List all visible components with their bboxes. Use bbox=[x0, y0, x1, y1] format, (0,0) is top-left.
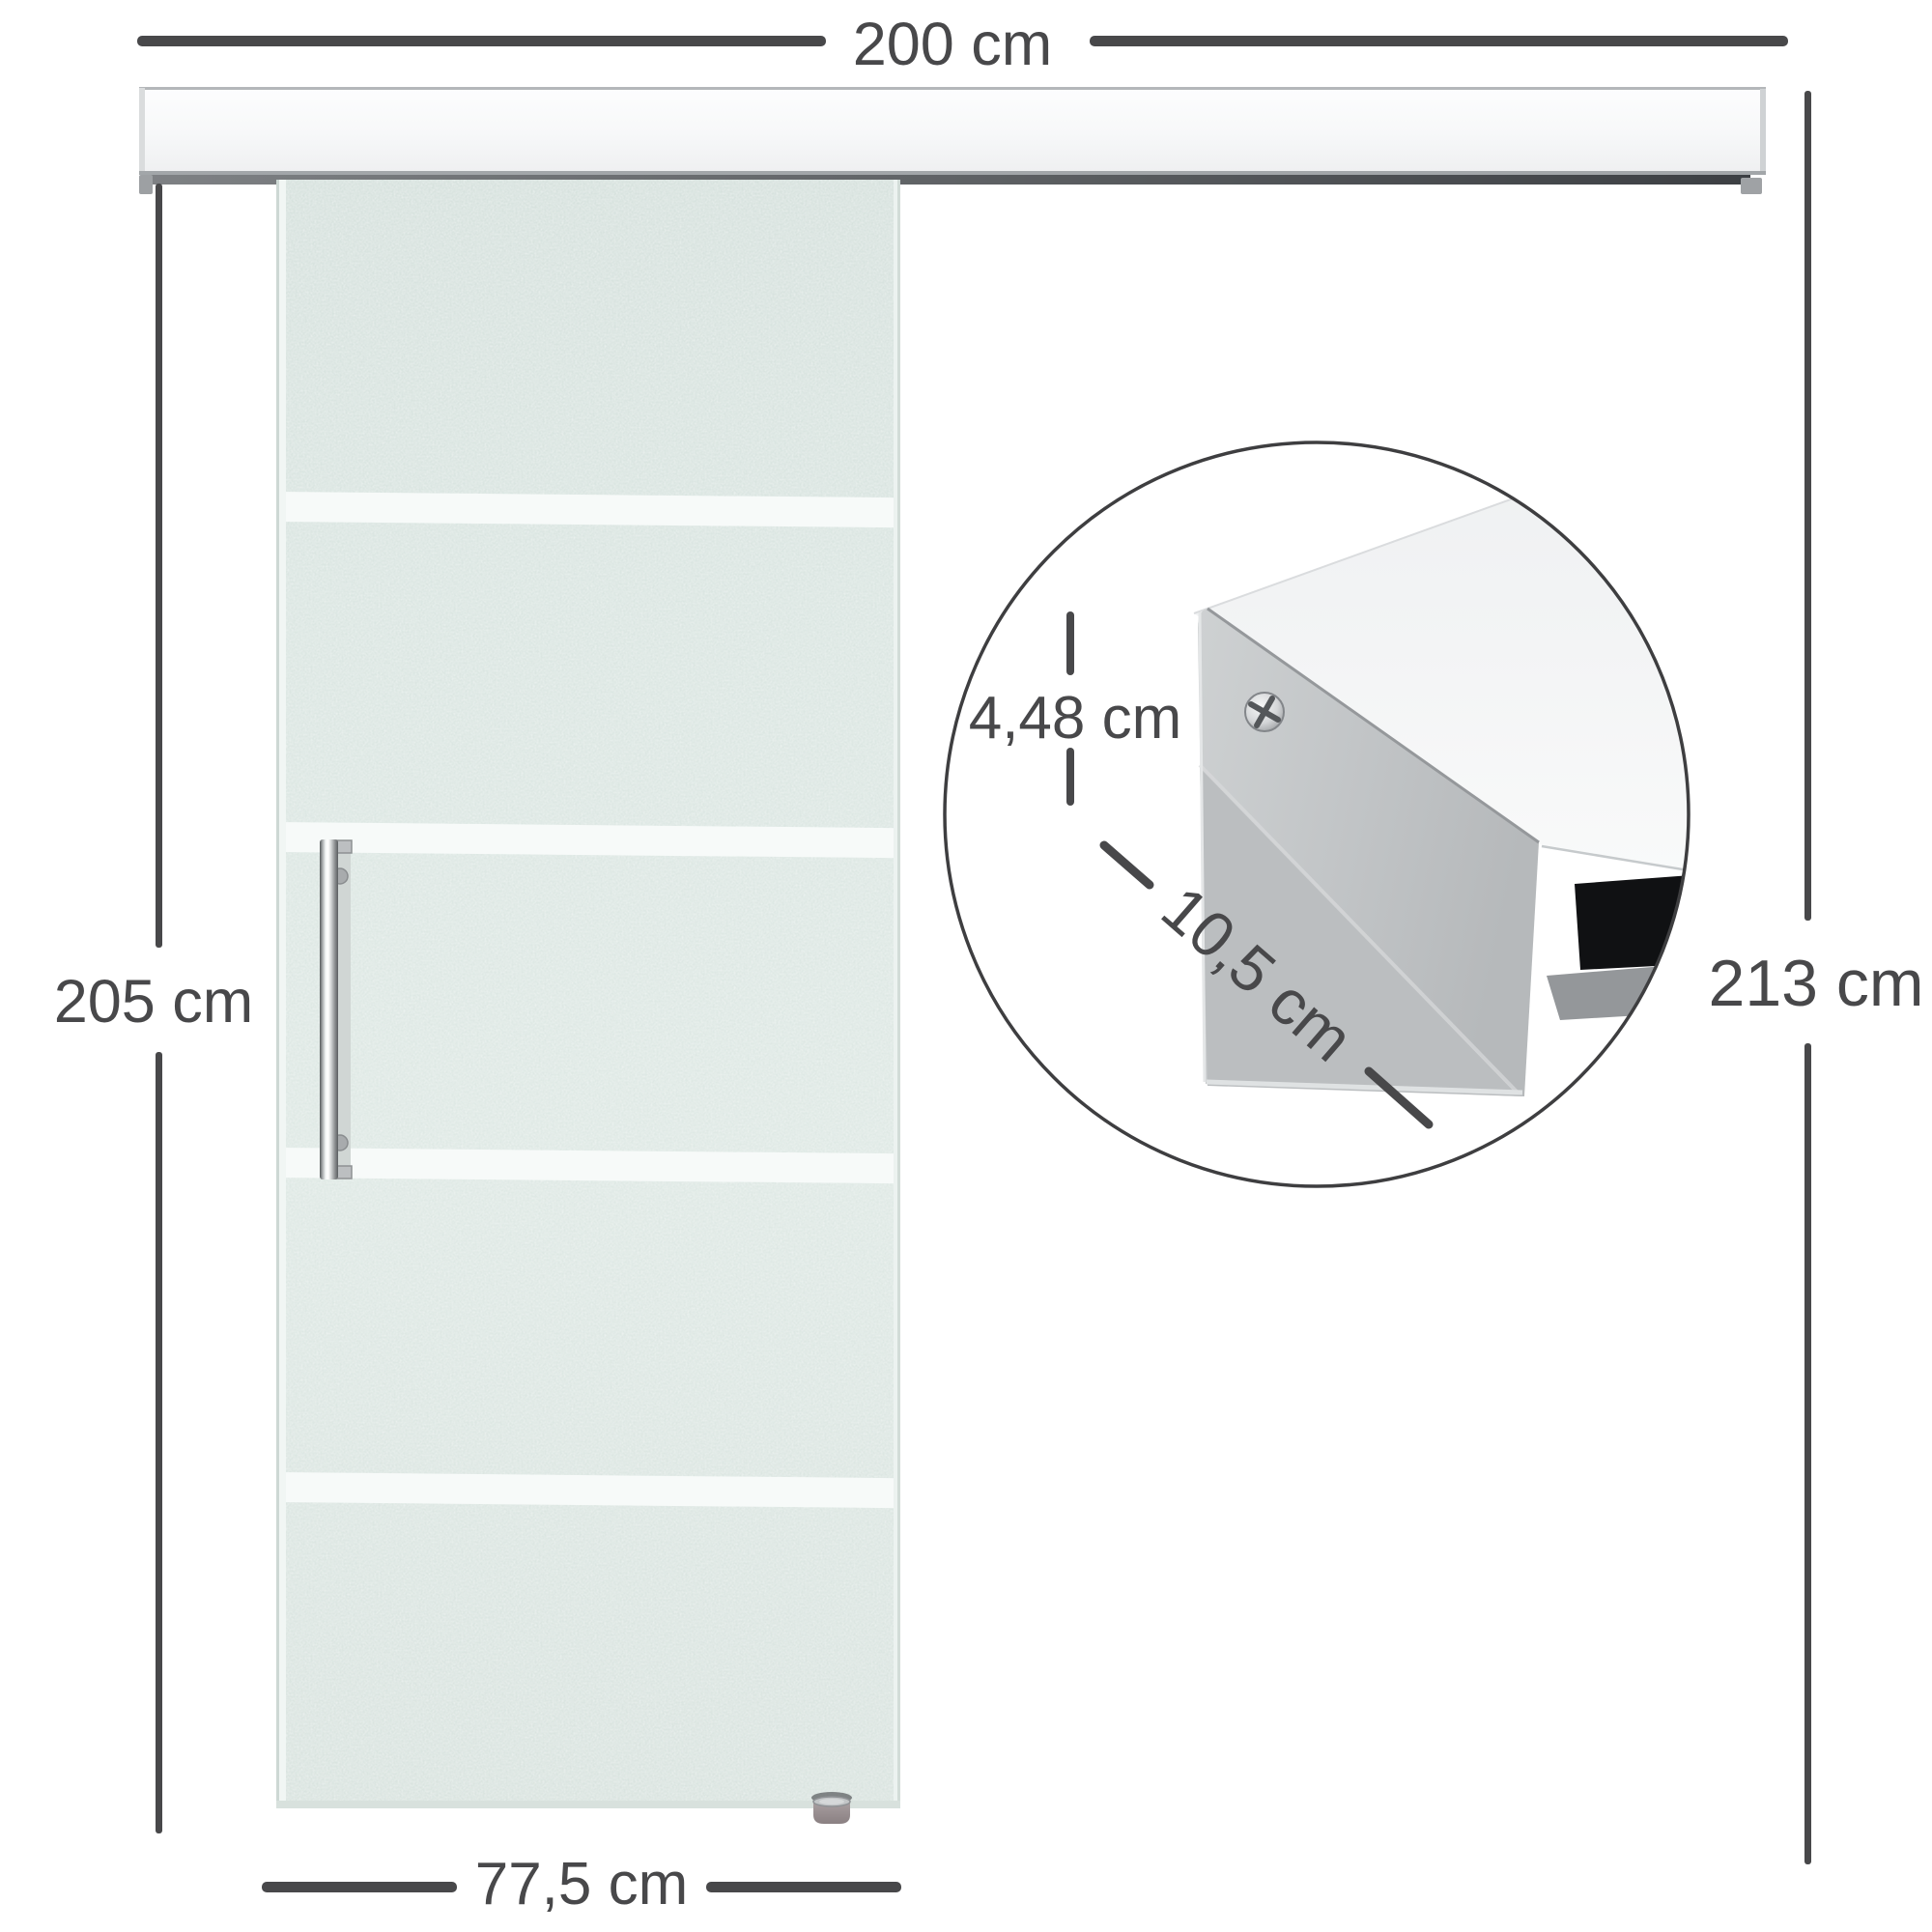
svg-text:4,48 cm: 4,48 cm bbox=[969, 685, 1182, 752]
svg-text:213 cm: 213 cm bbox=[1709, 947, 1924, 1020]
svg-text:205 cm: 205 cm bbox=[54, 968, 254, 1036]
svg-text:77,5 cm: 77,5 cm bbox=[475, 1851, 689, 1918]
svg-text:200 cm: 200 cm bbox=[853, 11, 1053, 78]
